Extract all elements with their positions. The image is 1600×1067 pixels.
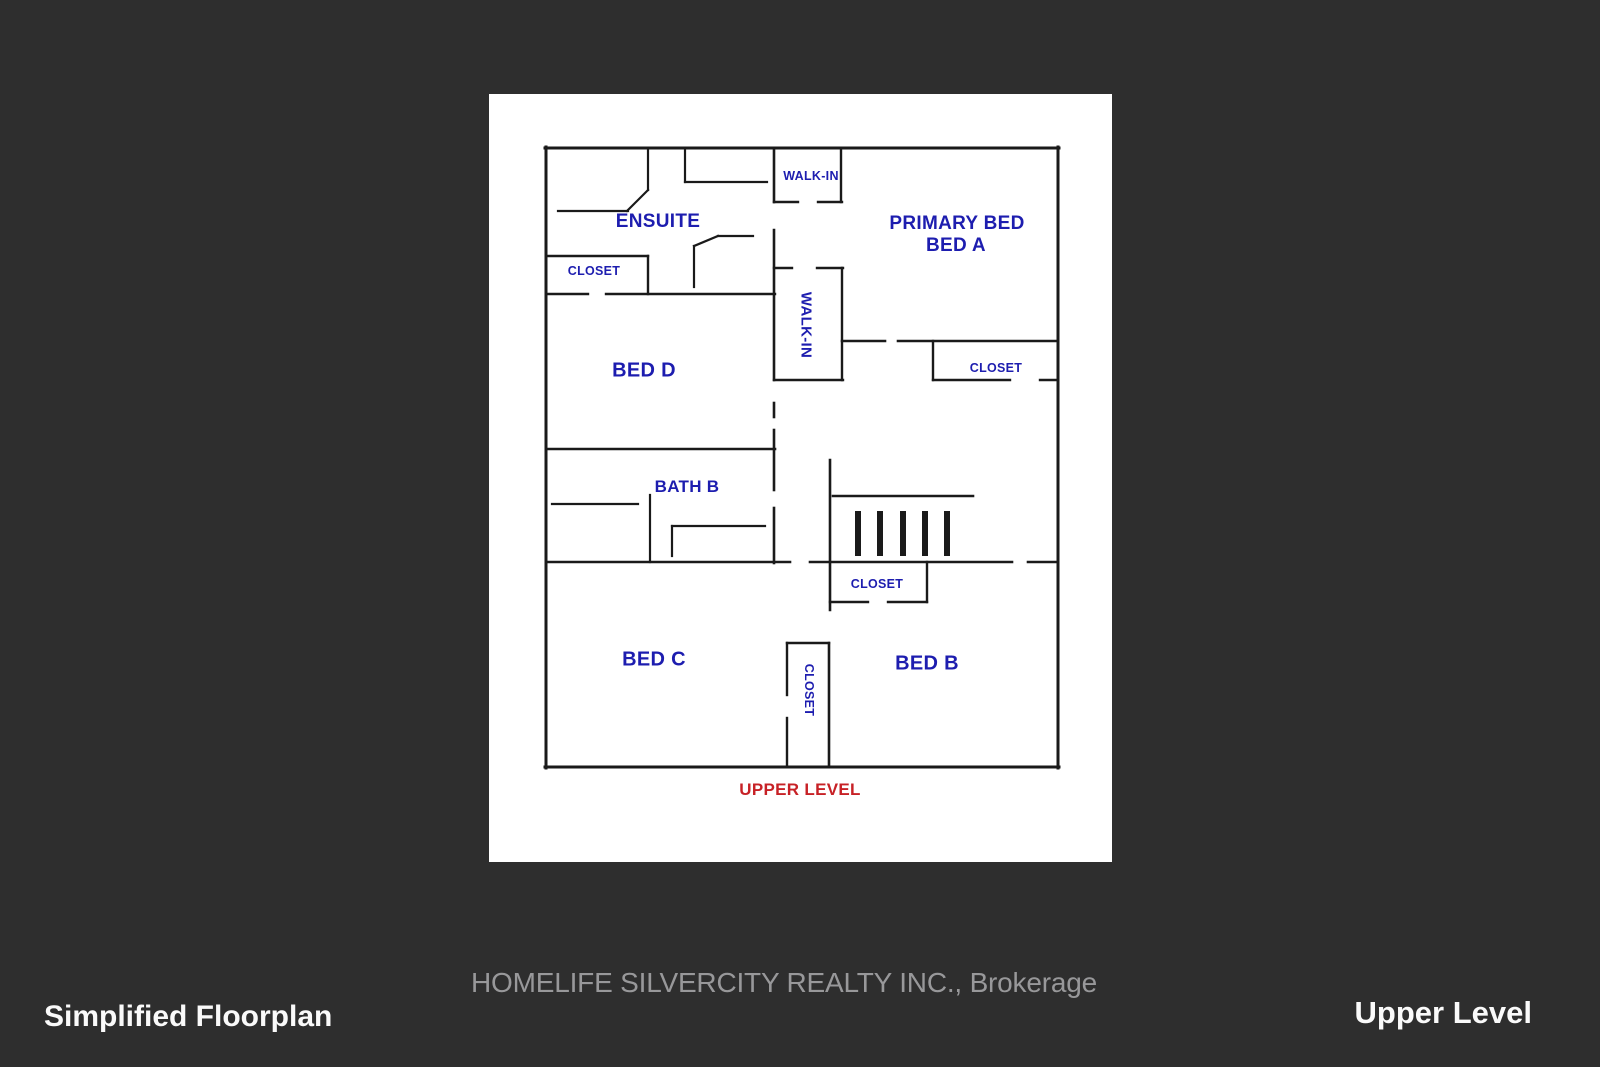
room-label-bed-b: BED B (895, 653, 959, 676)
wall-segment (694, 236, 718, 246)
room-label-closet-bed-b: CLOSET (851, 577, 904, 591)
room-label-closet-bed-a: CLOSET (970, 361, 1023, 375)
room-label-bath-b: BATH B (655, 477, 720, 497)
upper-level-label: UPPER LEVEL (739, 780, 860, 800)
room-label-closet-ensuite: CLOSET (568, 264, 621, 278)
floorplan-svg (0, 0, 1600, 1067)
footer-right-title: Upper Level (1355, 995, 1532, 1031)
room-label-bed-c: BED C (622, 649, 686, 672)
room-label-ensuite: ENSUITE (616, 211, 700, 233)
footer-left-title: Simplified Floorplan (44, 1000, 332, 1034)
room-label-closet-bed-c: CLOSET (802, 664, 816, 717)
wall-segment (627, 190, 648, 211)
room-label-primary-bed: PRIMARY BED (889, 213, 1024, 235)
room-label-walkin-top: WALK-IN (783, 169, 839, 183)
room-label-bed-a: BED A (926, 235, 986, 257)
stage: ENSUITEWALK-INPRIMARY BEDBED ACLOSETWALK… (0, 0, 1600, 1067)
room-label-walkin-center: WALK-IN (798, 292, 815, 358)
brokerage-text: HOMELIFE SILVERCITY REALTY INC., Brokera… (471, 967, 1097, 999)
room-label-bed-d: BED D (612, 360, 676, 383)
